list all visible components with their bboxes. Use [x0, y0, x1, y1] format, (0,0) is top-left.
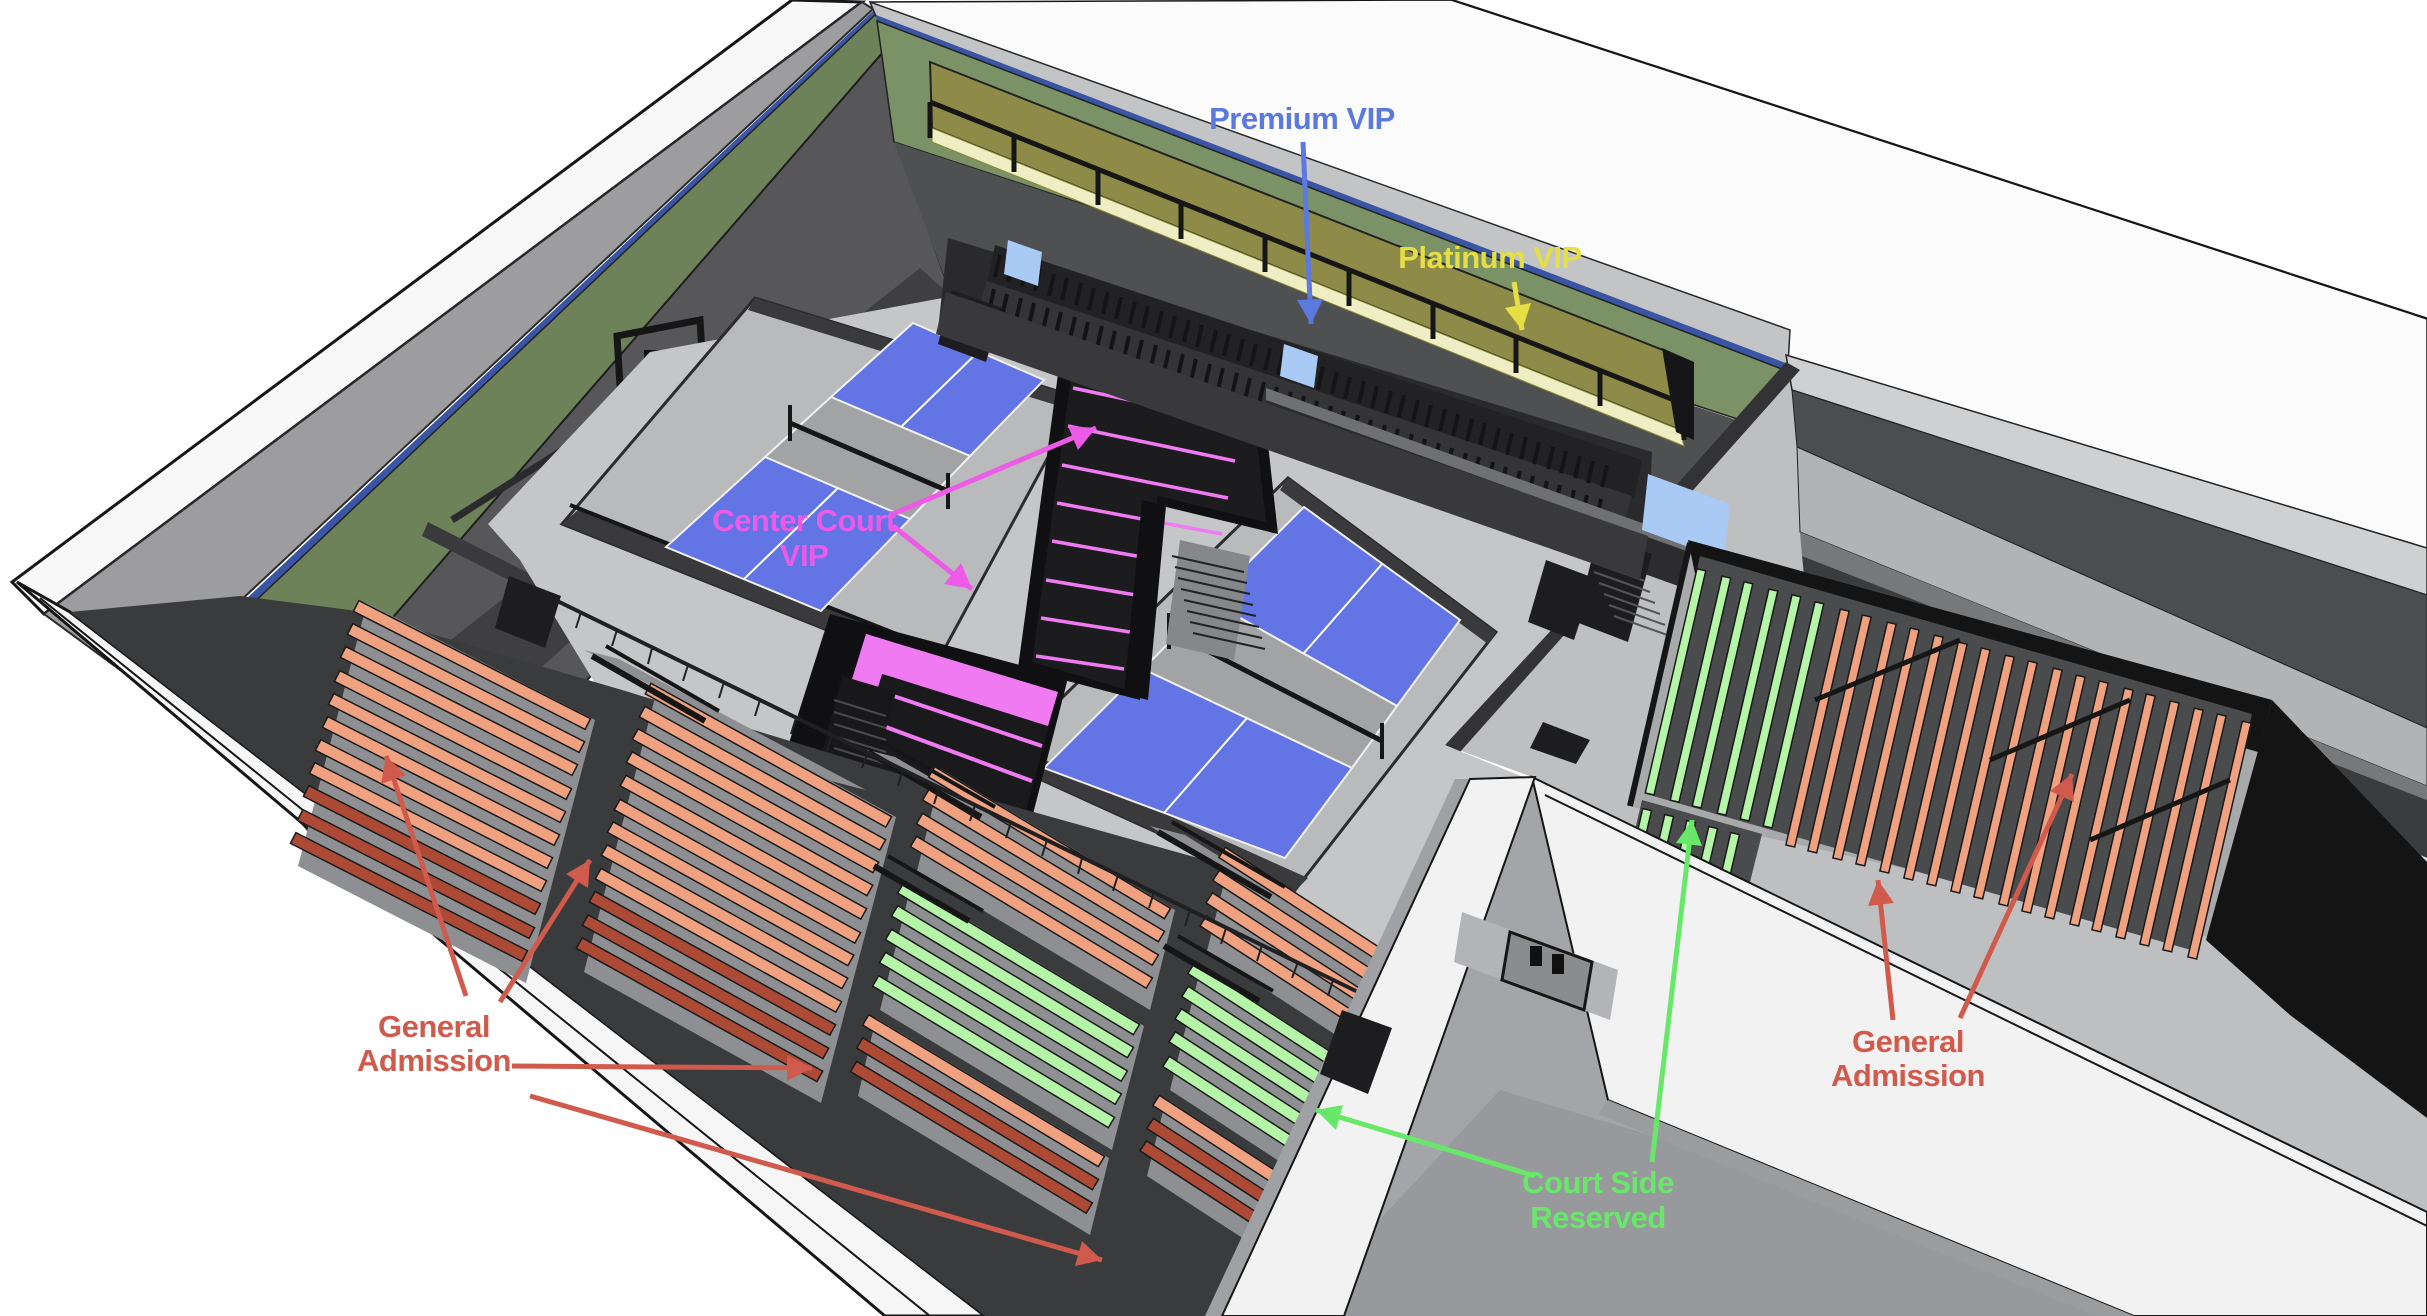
svg-text:General: General	[378, 1009, 490, 1044]
svg-text:General: General	[1852, 1024, 1964, 1059]
svg-text:Court Side: Court Side	[1522, 1165, 1674, 1200]
svg-text:Admission: Admission	[1831, 1058, 1985, 1093]
svg-text:Premium VIP: Premium VIP	[1209, 101, 1395, 136]
svg-text:VIP: VIP	[780, 538, 828, 573]
svg-text:Reserved: Reserved	[1530, 1200, 1666, 1235]
svg-text:Center Court: Center Court	[712, 503, 896, 538]
svg-text:Platinum VIP: Platinum VIP	[1398, 240, 1581, 275]
svg-text:Admission: Admission	[357, 1043, 511, 1078]
